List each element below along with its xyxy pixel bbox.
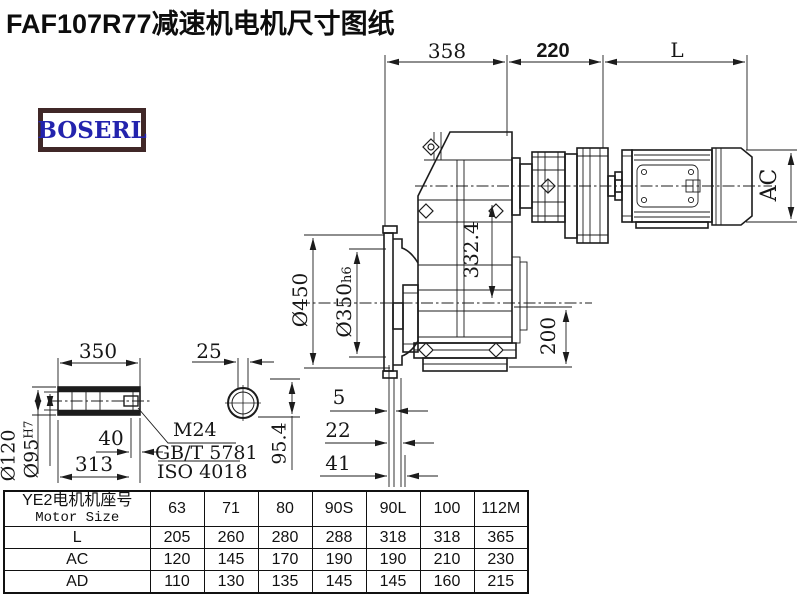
row-label: AC: [4, 549, 150, 571]
table-row: AC 120 145 170 190 190 210 230: [4, 549, 528, 571]
table-header-en: Motor Size: [5, 510, 150, 526]
dim-dia350-label: Ø350h6: [334, 252, 354, 352]
table-cell: 280: [258, 527, 312, 549]
table-cell: 110: [150, 571, 204, 594]
extension-lines: [32, 55, 797, 487]
table-cell: 318: [366, 527, 420, 549]
table-cell: 170: [258, 549, 312, 571]
dim-332-label: 332.4: [461, 212, 481, 288]
table-cell: 71: [204, 491, 258, 527]
table-cell: 90S: [312, 491, 366, 527]
page-title: FAF107R77减速机电机尺寸图纸: [6, 2, 395, 41]
table-cell: 190: [312, 549, 366, 571]
table-cell: 210: [420, 549, 474, 571]
standard-iso-label: ISO 4018: [157, 463, 252, 482]
dim-313-label: 313: [70, 454, 118, 474]
table-header-motor-size: YE2电机机座号 Motor Size: [4, 491, 150, 527]
dim-dia95-label: Ø95H7: [23, 412, 42, 488]
table-cell: 190: [366, 549, 420, 571]
table-cell: 260: [204, 527, 258, 549]
table-cell: 215: [474, 571, 528, 594]
boserl-logo: BOSERL: [38, 108, 146, 152]
boserl-logo-text: BOSERL: [42, 112, 142, 148]
table-cell: 205: [150, 527, 204, 549]
table-cell: 365: [474, 527, 528, 549]
table-header-row: YE2电机机座号 Motor Size 63 71 80 90S 90L 100…: [4, 491, 528, 527]
dim-22-label: 22: [322, 420, 354, 440]
table-cell: 318: [420, 527, 474, 549]
motor-detail-lines: [622, 148, 721, 225]
dim-dia450-label: Ø450: [290, 258, 310, 342]
dim-220-label: 220: [524, 41, 582, 61]
dim-40-label: 40: [97, 428, 125, 448]
table-cell: 145: [312, 571, 366, 594]
table-cell: 145: [366, 571, 420, 594]
table-cell: 100: [420, 491, 474, 527]
row-label: L: [4, 527, 150, 549]
dim-41-label: 41: [322, 453, 354, 473]
table-cell: 160: [420, 571, 474, 594]
bolt-symbols: [419, 139, 555, 357]
dim-5-label: 5: [327, 387, 351, 407]
table-cell: 112M: [474, 491, 528, 527]
dim-dia120-label: Ø120: [0, 421, 19, 491]
table-row: AD 110 130 135 145 145 160 215: [4, 571, 528, 594]
gearbox-outline: [383, 132, 622, 378]
dim-350-label: 350: [74, 341, 122, 361]
motor-size-table: YE2电机机座号 Motor Size 63 71 80 90S 90L 100…: [3, 490, 529, 594]
table-cell: 90L: [366, 491, 420, 527]
table-cell: 80: [258, 491, 312, 527]
table-cell: 230: [474, 549, 528, 571]
table-cell: 145: [204, 549, 258, 571]
center-axes: [50, 186, 772, 401]
dim-358-label: 358: [418, 41, 476, 61]
shaft-detail: [58, 358, 261, 421]
table-cell: 63: [150, 491, 204, 527]
row-label: AD: [4, 571, 150, 594]
drawing-page: FAF107R77减速机电机尺寸图纸 BOSERL 358 220 L AC Ø…: [0, 0, 800, 596]
dim-L-label: L: [654, 40, 700, 60]
table-row: L 205 260 280 288 318 318 365: [4, 527, 528, 549]
table-header-cn: YE2电机机座号: [5, 492, 150, 510]
dim-200-label: 200: [538, 306, 558, 366]
table-cell: 288: [312, 527, 366, 549]
dimension-lines: [38, 62, 791, 477]
table-cell: 120: [150, 549, 204, 571]
dim-95-4-label: 95.4: [271, 417, 290, 471]
dim-AC-label: AC: [759, 155, 781, 215]
thread-M24-label: M24: [173, 421, 243, 440]
table-cell: 135: [258, 571, 312, 594]
dim-25-label: 25: [193, 341, 225, 361]
table-cell: 130: [204, 571, 258, 594]
